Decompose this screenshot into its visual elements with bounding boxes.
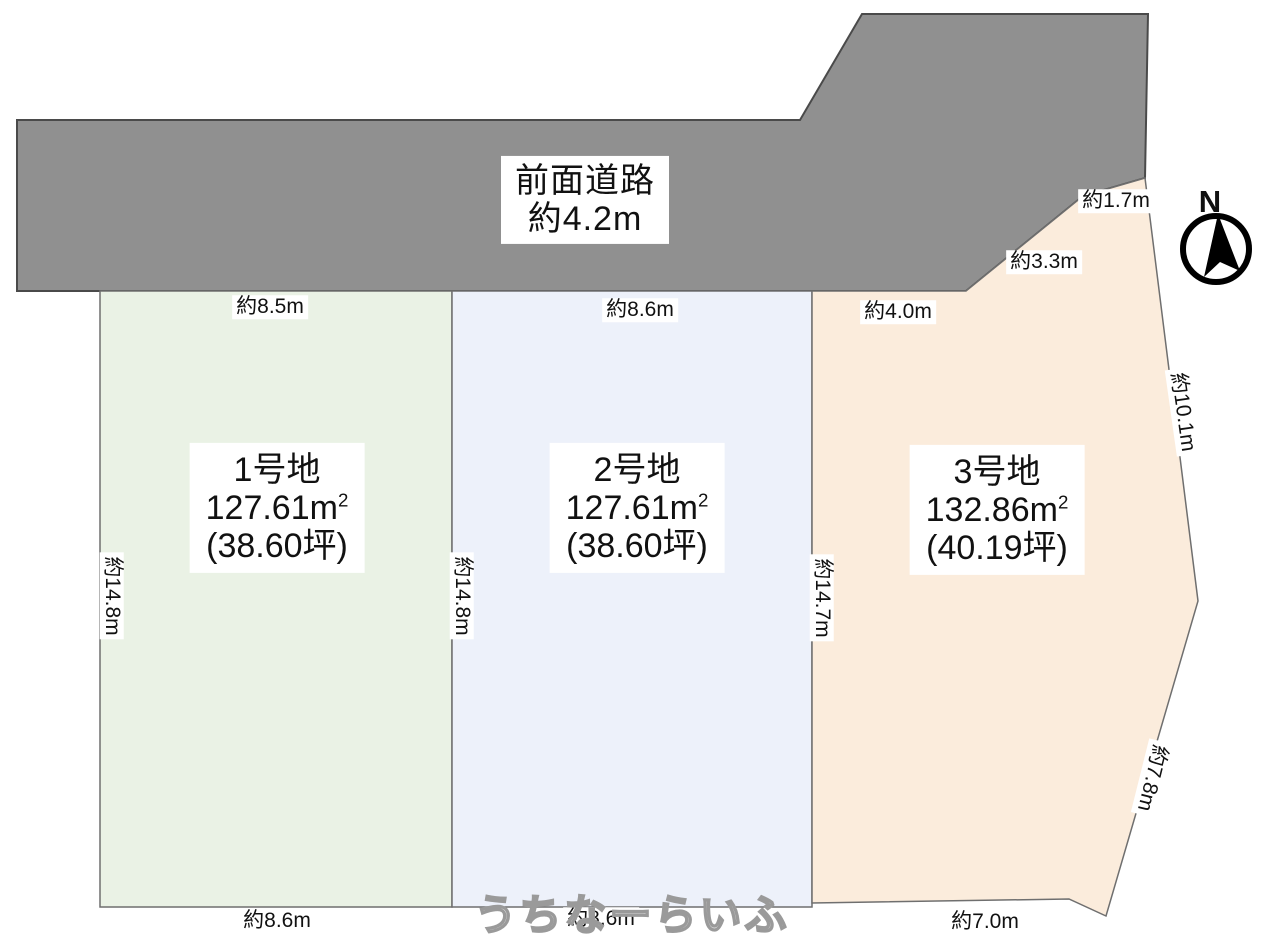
road-name: 前面道路 [515,162,655,200]
plot1-dim-top: 約8.5m [232,295,308,319]
plot2-label-box: 2号地 127.61m2 (38.60坪) [550,443,725,573]
plot3-dim-bottom: 約7.0m [947,910,1023,934]
compass-north-label: N [1199,184,1221,220]
plot2-name: 2号地 [566,451,709,489]
plot3-label-box: 3号地 132.86m2 (40.19坪) [910,445,1085,575]
plot3-dim-left: 約14.7m [810,554,834,641]
plot3-name: 3号地 [926,453,1069,491]
plot1-shape [100,291,452,907]
plot1-dim-bottom: 約8.6m [239,909,315,933]
plot1-tsubo: (38.60坪) [206,527,349,565]
plot2-dim-top: 約8.6m [602,298,678,322]
plot2-shape [452,291,812,907]
plot1-area: 127.61m2 [206,489,349,527]
plot1-label-box: 1号地 127.61m2 (38.60坪) [190,443,365,573]
road-label: 前面道路 約4.2m [501,156,669,244]
plot1-dim-left: 約14.8m [100,552,124,639]
plot3-dim-top: 約4.0m [860,300,936,324]
land-plot-diagram: N 前面道路 約4.2m 1号地 127.61m2 (38.60坪) 2号地 1… [0,0,1280,946]
plot2-tsubo: (38.60坪) [566,527,709,565]
plot3-dim-road-diag-upper: 約1.7m [1078,189,1154,213]
plot1-name: 1号地 [206,451,349,489]
plot2-area: 127.61m2 [566,489,709,527]
plot3-tsubo: (40.19坪) [926,529,1069,567]
road-width: 約4.2m [515,200,655,238]
plot3-dim-road-diag-lower: 約3.3m [1006,250,1082,274]
plot3-area: 132.86m2 [926,491,1069,529]
north-compass-icon [1183,214,1249,282]
site-watermark: うちなーらいふ [474,882,789,943]
road-shape [17,14,1148,291]
plot2-dim-left: 約14.8m [450,552,474,639]
